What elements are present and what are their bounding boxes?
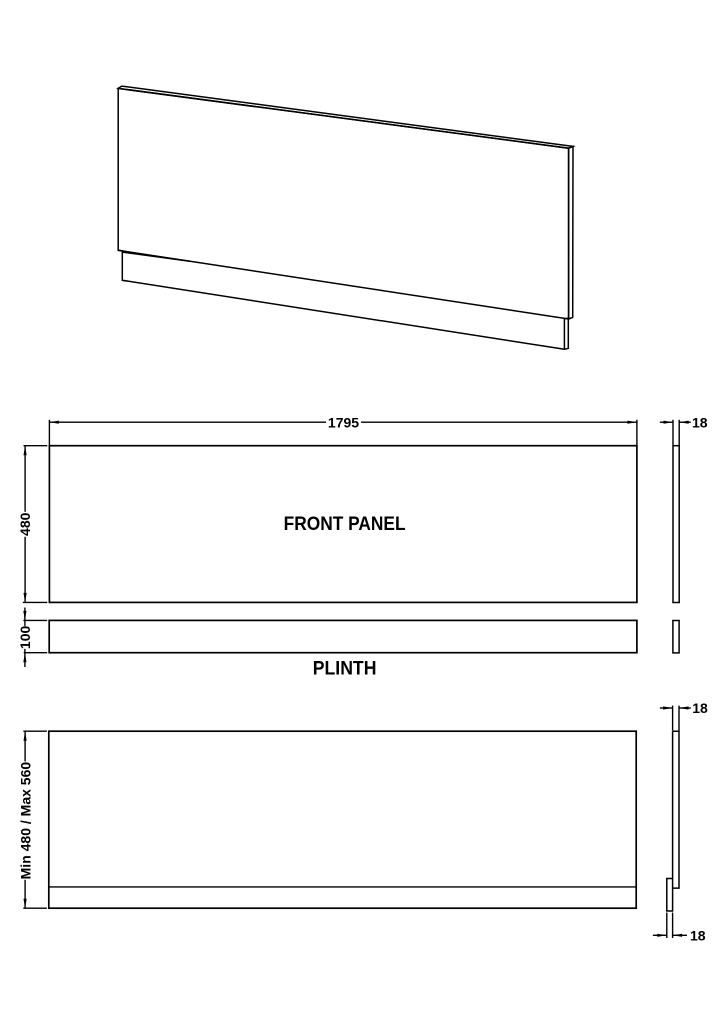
svg-text:Min 480 / Max 560: Min 480 / Max 560: [17, 762, 33, 880]
svg-text:480: 480: [17, 512, 33, 536]
svg-text:18: 18: [692, 700, 708, 716]
svg-text:18: 18: [690, 927, 706, 943]
svg-text:FRONT PANEL: FRONT PANEL: [284, 513, 406, 534]
svg-text:1795: 1795: [328, 414, 359, 430]
svg-text:18: 18: [692, 414, 708, 430]
svg-text:PLINTH: PLINTH: [313, 657, 377, 679]
svg-text:100: 100: [17, 626, 33, 650]
